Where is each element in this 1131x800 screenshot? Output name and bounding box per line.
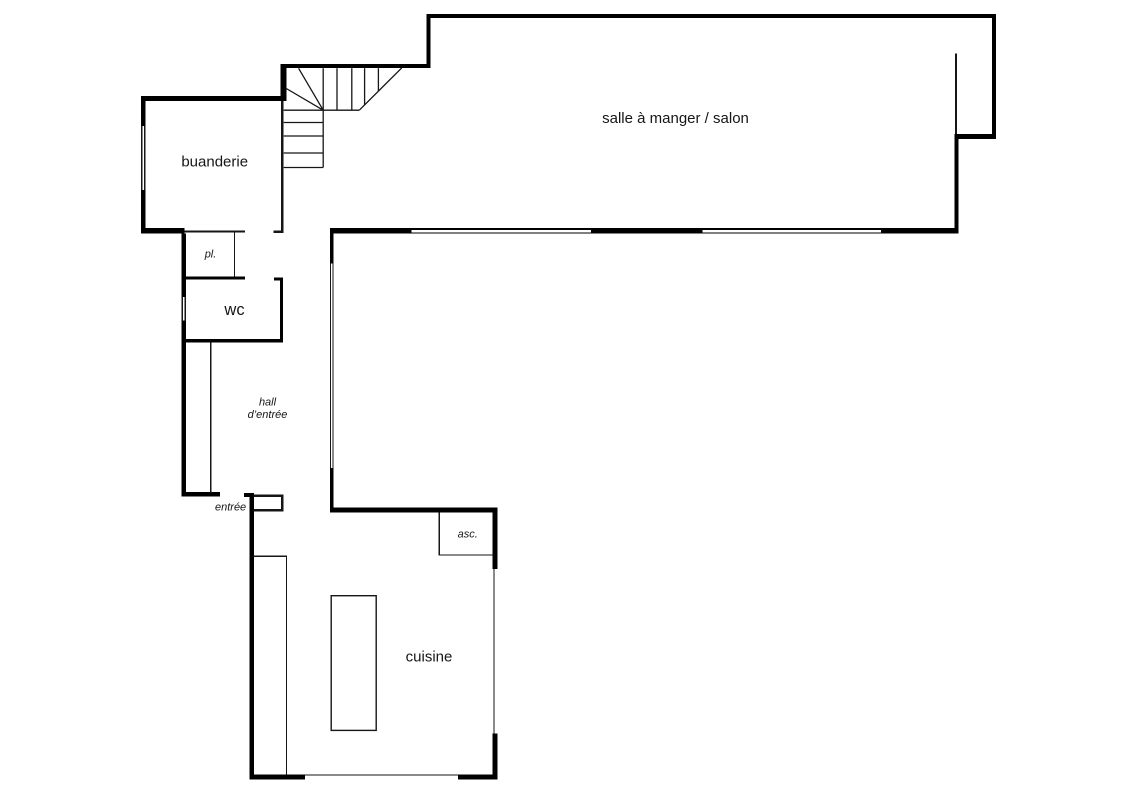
svg-text:buanderie: buanderie <box>181 154 248 171</box>
svg-text:entrée: entrée <box>215 502 246 514</box>
svg-text:d’entrée: d’entrée <box>248 409 288 421</box>
svg-text:hall: hall <box>259 397 277 409</box>
svg-text:salle à manger / salon: salle à manger / salon <box>602 110 749 127</box>
svg-text:wc: wc <box>223 301 244 319</box>
svg-text:pl.: pl. <box>204 249 217 261</box>
svg-text:cuisine: cuisine <box>406 649 453 666</box>
svg-text:asc.: asc. <box>458 528 478 540</box>
